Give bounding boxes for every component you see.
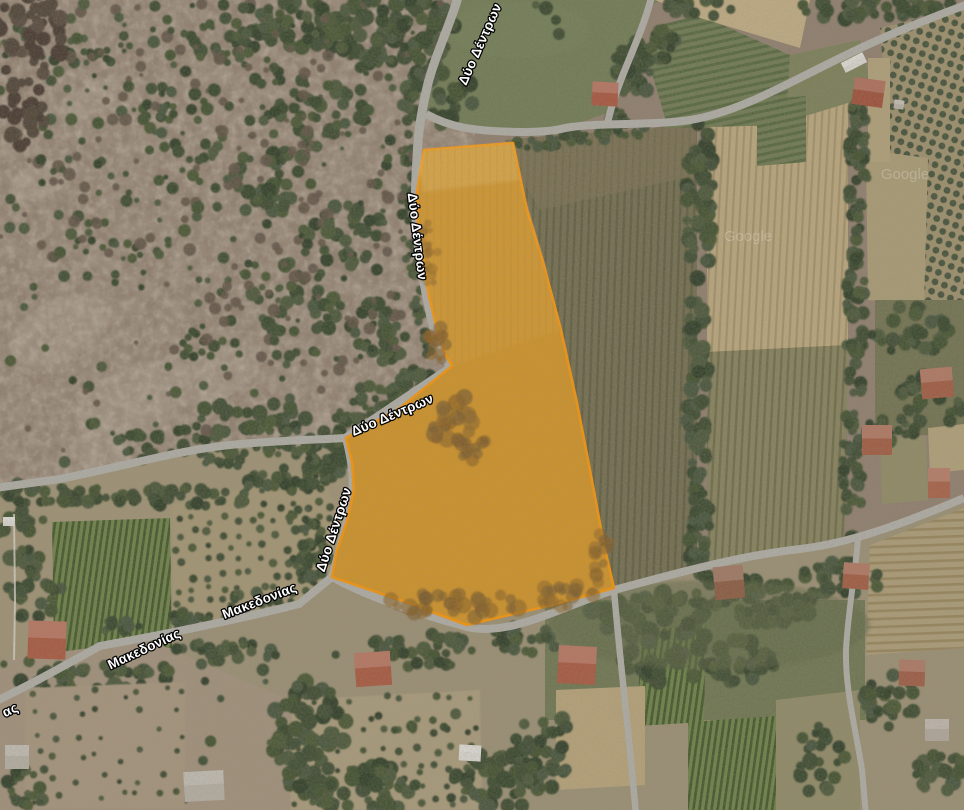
- svg-text:Google: Google: [881, 166, 929, 183]
- svg-text:Google: Google: [724, 228, 772, 245]
